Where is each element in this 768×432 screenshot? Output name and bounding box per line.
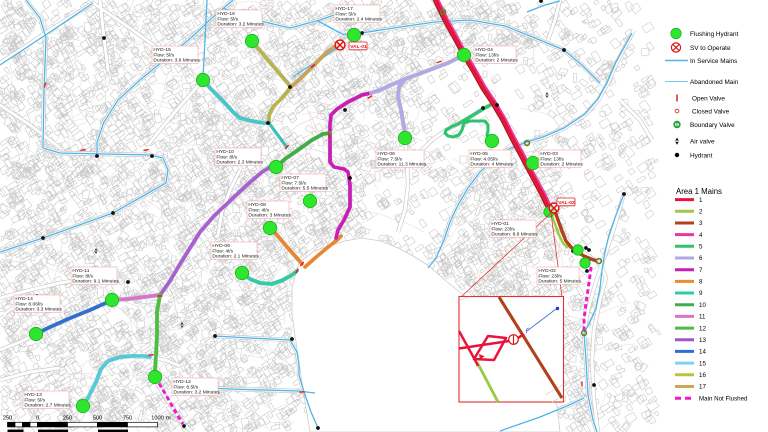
svg-text:HYD-10: HYD-10 [216, 149, 234, 155]
svg-text:In Service Mains: In Service Mains [690, 58, 737, 65]
svg-text:Duration: 2 Minutes: Duration: 2 Minutes [540, 162, 583, 168]
svg-text:17: 17 [699, 384, 706, 391]
svg-text:HYD-13: HYD-13 [24, 392, 42, 398]
svg-text:Flow: 8.06l/s: Flow: 8.06l/s [15, 301, 43, 307]
svg-text:Flow: 8l/s: Flow: 8l/s [72, 273, 93, 279]
svg-text:Area 1 Mains: Area 1 Mains [676, 187, 722, 196]
svg-text:Duration: 2.4 Minutes: Duration: 2.4 Minutes [335, 17, 382, 23]
svg-text:HYD-12: HYD-12 [173, 379, 191, 385]
svg-text:Duration: 5 Minutes: Duration: 5 Minutes [538, 279, 581, 285]
svg-text:Flow: 8l/s: Flow: 8l/s [216, 154, 237, 160]
svg-text:Duration: 3.3 Minutes: Duration: 3.3 Minutes [15, 307, 62, 313]
svg-text:HYD-17: HYD-17 [335, 6, 353, 12]
svg-text:Flow: 13l/s: Flow: 13l/s [540, 156, 564, 162]
svg-text:Duration: 2.1 Minutes: Duration: 2.1 Minutes [212, 254, 259, 260]
svg-text:Duration: 3.2 Minutes: Duration: 3.2 Minutes [173, 390, 220, 396]
svg-text:HYD-02: HYD-02 [538, 268, 556, 274]
svg-text:Flow: 7.5l/s: Flow: 7.5l/s [377, 156, 402, 162]
svg-text:16: 16 [699, 372, 706, 379]
svg-text:Hydrant: Hydrant [690, 153, 713, 160]
svg-text:1: 1 [699, 197, 703, 204]
svg-text:Flow: 7.5l/s: Flow: 7.5l/s [281, 180, 306, 186]
svg-text:Flow: 5l/s: Flow: 5l/s [24, 397, 45, 403]
svg-text:Duration: 3 Minutes: Duration: 3 Minutes [248, 213, 291, 219]
svg-text:500: 500 [93, 416, 102, 422]
svg-text:Duration: 8.8 Minutes: Duration: 8.8 Minutes [491, 232, 538, 238]
svg-text:5: 5 [699, 244, 703, 251]
svg-text:HYD-05: HYD-05 [470, 151, 488, 157]
svg-text:10: 10 [699, 302, 706, 309]
svg-text:Flow: 5l/s: Flow: 5l/s [335, 11, 356, 17]
svg-text:14: 14 [699, 349, 706, 356]
svg-text:HYD-04: HYD-04 [475, 47, 493, 53]
svg-text:8: 8 [699, 279, 703, 286]
svg-text:Flow: 4l/s: Flow: 4l/s [212, 248, 233, 254]
svg-text:SV to Operate: SV to Operate [690, 45, 731, 52]
svg-text:Flow: 13l/s: Flow: 13l/s [475, 52, 499, 58]
svg-text:Duration: 2 Minutes: Duration: 2 Minutes [475, 58, 518, 64]
svg-text:HYD-06: HYD-06 [377, 151, 395, 157]
svg-text:11: 11 [699, 314, 706, 321]
svg-text:HYD-08: HYD-08 [248, 202, 266, 208]
svg-text:1000: 1000 [151, 416, 163, 422]
svg-text:250: 250 [63, 416, 72, 422]
svg-text:Air valve: Air valve [690, 139, 715, 146]
svg-text:HYD-09: HYD-09 [212, 243, 230, 249]
svg-text:7: 7 [699, 267, 703, 274]
svg-text:Flow: 4l/s: Flow: 4l/s [248, 207, 269, 213]
svg-text:Duration: 3.6 Minutes: Duration: 3.6 Minutes [153, 58, 200, 64]
svg-text:Duration: 4 Minutes: Duration: 4 Minutes [470, 162, 513, 168]
svg-text:Duration: 11.3 Minutes: Duration: 11.3 Minutes [377, 162, 426, 168]
svg-text:Closed Valve: Closed Valve [692, 109, 730, 116]
svg-text:Flushing Hydrant: Flushing Hydrant [690, 31, 739, 38]
svg-text:4: 4 [699, 232, 703, 239]
svg-text:750: 750 [123, 416, 132, 422]
svg-text:Flow: 23l/s: Flow: 23l/s [538, 273, 562, 279]
svg-text:Main Not Flushed: Main Not Flushed [699, 395, 748, 402]
svg-text:VAL-02: VAL-02 [558, 200, 575, 206]
svg-text:Duration: 2.7 Minutes: Duration: 2.7 Minutes [24, 403, 71, 409]
svg-text:250: 250 [3, 416, 12, 422]
svg-text:12: 12 [699, 325, 706, 332]
svg-text:Duration: 5.5 Minutes: Duration: 5.5 Minutes [281, 186, 328, 192]
svg-text:Open Valve: Open Valve [692, 96, 725, 103]
svg-text:HYD-16: HYD-16 [217, 11, 235, 17]
svg-text:HYD-11: HYD-11 [72, 268, 89, 274]
svg-text:3: 3 [699, 220, 703, 227]
svg-text:Duration: 2.3 Minutes: Duration: 2.3 Minutes [216, 160, 263, 166]
svg-text:Flow: 5l/s: Flow: 5l/s [217, 16, 238, 22]
svg-text:15: 15 [699, 360, 706, 367]
svg-text:HYD-03: HYD-03 [540, 151, 558, 157]
svg-text:Duration: 9.1 Minutes: Duration: 9.1 Minutes [72, 279, 119, 285]
svg-text:9: 9 [699, 290, 703, 297]
svg-text:VAL-01: VAL-01 [350, 44, 367, 50]
svg-text:Flow: 8.5l/s: Flow: 8.5l/s [173, 384, 198, 390]
svg-text:Boundary Valve: Boundary Valve [690, 122, 735, 129]
svg-text:13: 13 [699, 337, 706, 344]
svg-text:HYD-01: HYD-01 [491, 221, 509, 227]
svg-text:Flow: 4.05l/s: Flow: 4.05l/s [470, 156, 498, 162]
svg-text:Duration: 3.2 Minutes: Duration: 3.2 Minutes [217, 22, 264, 28]
svg-text:HYD-15: HYD-15 [153, 47, 171, 53]
svg-text:2: 2 [699, 209, 703, 216]
svg-text:HYD-14: HYD-14 [15, 296, 33, 302]
svg-text:Flow: 5l/s: Flow: 5l/s [153, 52, 174, 58]
svg-text:Abandoned Main: Abandoned Main [690, 79, 739, 86]
svg-text:m: m [166, 416, 171, 422]
svg-text:HYD-07: HYD-07 [281, 175, 299, 181]
svg-text:Flow: 23l/s: Flow: 23l/s [491, 226, 515, 232]
svg-text:6: 6 [699, 255, 703, 262]
svg-text:0: 0 [36, 416, 39, 422]
